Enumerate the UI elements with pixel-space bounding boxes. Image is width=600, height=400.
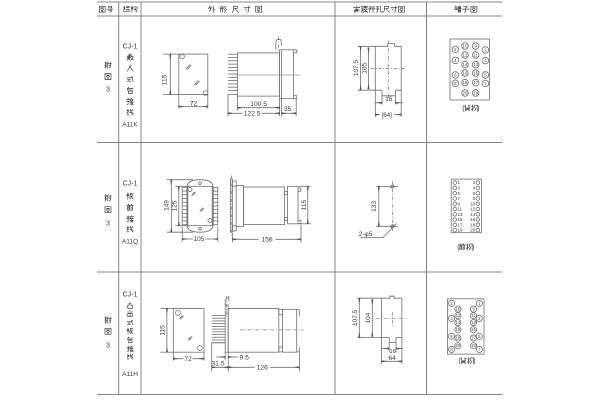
svg-text:17: 17 xyxy=(473,80,478,85)
svg-text:10: 10 xyxy=(456,307,461,312)
svg-text:12: 12 xyxy=(470,207,476,212)
svg-text:20: 20 xyxy=(456,343,461,348)
svg-text:3: 3 xyxy=(106,220,110,227)
svg-text:10: 10 xyxy=(463,44,468,49)
svg-text:): ) xyxy=(473,358,475,365)
svg-text:15: 15 xyxy=(471,327,476,332)
svg-text:100.5: 100.5 xyxy=(250,101,267,108)
svg-text:122.5: 122.5 xyxy=(244,111,261,118)
svg-text:18: 18 xyxy=(463,80,468,85)
svg-text:115: 115 xyxy=(162,74,169,85)
svg-text:17: 17 xyxy=(458,222,464,227)
svg-text:19: 19 xyxy=(471,343,476,348)
svg-text:15: 15 xyxy=(473,71,478,76)
svg-text:126: 126 xyxy=(257,365,269,372)
svg-text:105: 105 xyxy=(194,236,205,243)
svg-text:CJ-1: CJ-1 xyxy=(123,43,138,50)
svg-text:115: 115 xyxy=(301,199,308,210)
svg-text:64: 64 xyxy=(388,355,396,362)
svg-text:20: 20 xyxy=(463,91,468,96)
svg-text:CJ-1: CJ-1 xyxy=(123,180,138,187)
svg-text:14: 14 xyxy=(470,212,476,217)
svg-text:18: 18 xyxy=(470,222,476,227)
svg-text:13: 13 xyxy=(458,212,464,217)
svg-text:13: 13 xyxy=(471,320,476,325)
svg-text:): ) xyxy=(472,244,474,251)
svg-text:A11Q: A11Q xyxy=(122,239,138,246)
svg-text:18: 18 xyxy=(456,336,461,341)
svg-text:12: 12 xyxy=(463,53,468,58)
svg-text:16: 16 xyxy=(463,71,468,76)
svg-text:CJ-1: CJ-1 xyxy=(123,291,138,298)
svg-text:19: 19 xyxy=(473,91,478,96)
svg-text:31.5: 31.5 xyxy=(211,361,224,368)
svg-text:15: 15 xyxy=(458,217,464,222)
svg-text:104: 104 xyxy=(365,312,372,323)
svg-text:125: 125 xyxy=(172,200,179,211)
svg-text:156: 156 xyxy=(261,237,273,244)
svg-text:105: 105 xyxy=(362,62,369,73)
svg-text:11: 11 xyxy=(471,313,476,318)
svg-text:149: 149 xyxy=(164,200,171,211)
svg-text:133: 133 xyxy=(371,201,378,212)
svg-text:16: 16 xyxy=(385,96,392,103)
svg-text:): ) xyxy=(477,106,479,113)
svg-text:A11K: A11K xyxy=(122,121,138,128)
svg-text:115: 115 xyxy=(159,325,166,336)
svg-text:11: 11 xyxy=(473,53,478,58)
svg-text:12: 12 xyxy=(456,313,461,318)
svg-text:19: 19 xyxy=(458,228,464,233)
svg-text:20: 20 xyxy=(470,228,476,233)
svg-text:13: 13 xyxy=(473,62,478,67)
svg-text:14: 14 xyxy=(463,62,468,67)
svg-text:11: 11 xyxy=(458,207,463,212)
svg-text:107.5: 107.5 xyxy=(353,59,360,76)
svg-text:72: 72 xyxy=(184,356,192,363)
svg-text:14: 14 xyxy=(456,320,461,325)
svg-text:35: 35 xyxy=(284,106,292,113)
svg-text:9.5: 9.5 xyxy=(240,355,250,362)
svg-text:107.5: 107.5 xyxy=(352,309,359,326)
svg-text:72: 72 xyxy=(190,100,198,107)
svg-text:3: 3 xyxy=(106,343,110,350)
svg-text:3: 3 xyxy=(106,87,110,94)
svg-text:[64]: [64] xyxy=(382,112,393,119)
svg-text:A11H: A11H xyxy=(122,371,138,378)
svg-text:16: 16 xyxy=(456,327,461,332)
svg-text:16: 16 xyxy=(470,217,476,222)
svg-text:17: 17 xyxy=(471,336,476,341)
svg-text:10: 10 xyxy=(470,201,476,206)
svg-text:2-φ5: 2-φ5 xyxy=(359,231,373,238)
